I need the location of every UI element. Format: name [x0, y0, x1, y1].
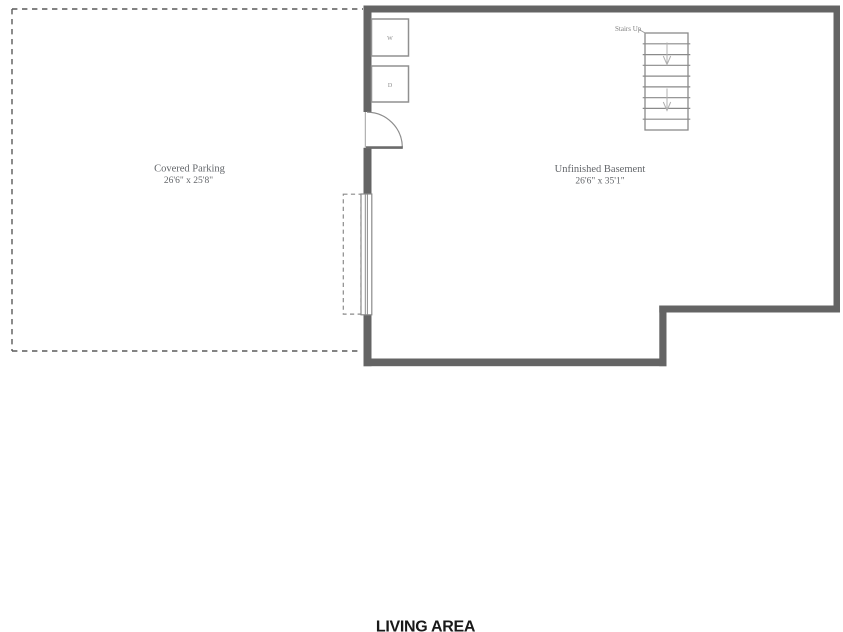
svg-text:Covered Parking: Covered Parking: [154, 164, 226, 175]
svg-text:LIVING AREA: LIVING AREA: [376, 619, 476, 632]
svg-text:D: D: [388, 83, 393, 89]
svg-text:W: W: [387, 36, 393, 42]
svg-text:Unfinished Basement: Unfinished Basement: [555, 164, 646, 175]
svg-text:26'6" x 35'1": 26'6" x 35'1": [575, 177, 624, 187]
svg-text:26'6" x 25'8": 26'6" x 25'8": [164, 176, 213, 186]
svg-text:Stairs Up: Stairs Up: [615, 25, 642, 33]
